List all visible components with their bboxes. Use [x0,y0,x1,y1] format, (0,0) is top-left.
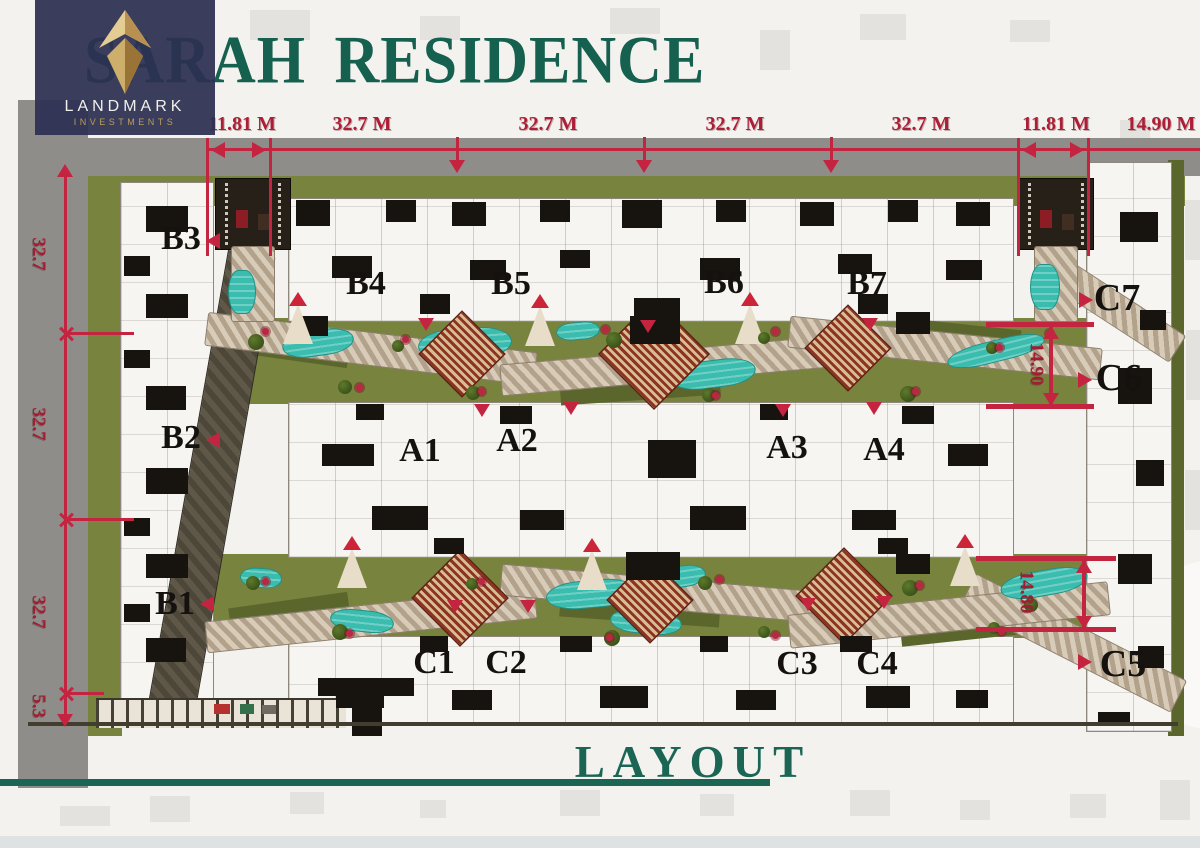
facade-patch [386,200,416,222]
pointer-icon-c5 [1078,654,1092,670]
facade-patch [372,506,428,530]
entry-cone-tip-icon [583,538,601,552]
dimension-cross-tick [57,685,75,703]
edge-marker-icon [862,318,878,331]
flower-icon [716,576,723,583]
flower-icon [402,336,409,343]
edge-marker-icon [520,600,536,613]
background-block [1160,780,1190,820]
bush-icon [606,332,622,348]
facade-patch [560,636,592,652]
arrowhead-icon [1022,142,1036,158]
edge-marker-icon [775,404,791,417]
entry-cone-tip-icon [956,534,974,548]
facade-patch [896,312,930,334]
building-label-a2: A2 [496,422,538,460]
flower-icon [912,388,919,395]
facade-patch [146,554,188,578]
bush-icon [466,578,478,590]
background-block [860,14,906,40]
dimension-cross-tick [57,325,75,343]
flower-icon [478,578,485,585]
pointer-icon-b2 [206,432,220,448]
facade-patch [520,510,564,530]
building-label-a4: A4 [863,431,905,469]
background-block [420,800,446,818]
building-label-b6: B6 [704,264,744,302]
bush-icon [758,626,770,638]
entry-cone [525,306,555,346]
building-label-c3: C3 [776,645,818,683]
background-block [1185,200,1200,260]
edge-marker-icon [418,318,434,331]
facade-patch [146,294,188,318]
facade-patch [956,202,990,226]
dimension-line-top [207,148,1200,151]
facade-patch [146,468,188,494]
facade-patch [124,256,150,276]
facade-patch [716,200,746,222]
background-block [1185,470,1200,530]
pointer-icon-b3 [206,233,220,249]
building-label-c2: C2 [485,644,527,682]
arrowhead-icon [449,160,465,173]
dimension-cap [976,627,1116,632]
facade-patch [736,690,776,710]
road-left [18,100,88,788]
facade-patch [626,552,680,580]
landmark-arrow-icon [95,10,155,96]
dimension-cap [986,404,1094,409]
facade-patch [878,538,908,554]
facade-patch [296,200,330,226]
dim-top-1490: 14.90 M [1127,113,1196,136]
footer-band [0,836,1200,848]
flower-icon [772,632,779,639]
building-label-b1: B1 [155,585,195,623]
facade-patch [956,690,988,708]
dim-left-53: 5.3 [27,694,49,718]
facade-patch [560,250,590,268]
vehicle [262,705,276,714]
facade-patch [622,200,662,228]
edge-marker-icon [876,596,892,609]
background-block [560,790,600,816]
building-label-c4: C4 [856,645,898,683]
facade-patch [434,538,464,554]
arrowhead-icon [823,160,839,173]
facade-patch [1140,310,1166,330]
flower-icon [356,384,363,391]
entry-cone [577,550,607,590]
pointer-icon-c6 [1078,372,1092,388]
arrowhead-icon [1043,326,1059,339]
background-block [700,794,734,816]
dimension-cap [986,322,1094,327]
entry-cone-tip-icon [289,292,307,306]
brand-logo: LANDMARK INVESTMENTS [35,0,215,135]
dim-left-327-2: 32.7 [27,407,49,440]
building-label-c1: C1 [413,644,455,682]
flower-icon [602,326,609,333]
building-label-c7: C7 [1094,276,1140,320]
dim-left-327-3: 32.7 [27,595,49,628]
facade-patch [852,510,896,530]
facade-patch [866,686,910,708]
facade-patch [124,350,150,368]
facade-patch [1136,460,1164,486]
dim-top-1181-right: 11.81 M [1022,113,1090,136]
background-block [760,30,790,70]
facade-patch [1120,212,1158,242]
edge-marker-icon [474,404,490,417]
bush-icon [758,332,770,344]
background-block [1186,330,1200,400]
vehicle [1062,214,1074,230]
plan-bottom-edge [28,722,1178,726]
dimension-cross-tick [57,511,75,529]
building-label-b7: B7 [847,265,887,303]
pointer-icon-b1 [200,596,214,612]
caption-underline [0,779,770,786]
landscape-strip-left [88,176,122,736]
entrance-gate-right [1018,178,1094,250]
facade-patch [322,444,374,466]
edge-marker-icon [866,402,882,415]
arrowhead-icon [57,164,73,177]
facade-patch [420,294,450,314]
arrowhead-icon [1076,616,1092,629]
dim-top-327-2: 32.7 M [519,113,578,136]
flower-icon [916,582,923,589]
facade-patch [540,200,570,222]
facade-patch [896,554,930,574]
entry-cone-tip-icon [343,536,361,550]
flower-icon [478,388,485,395]
facade-patch [690,506,746,530]
dimension-post [1087,138,1090,256]
facade-patch [452,690,492,710]
pool [228,270,256,314]
bush-icon [698,576,712,590]
bush-icon [248,334,264,350]
entry-cone-tip-icon [531,294,549,308]
building-label-b3: B3 [161,220,201,258]
bush-icon [246,576,260,590]
entry-cone [283,304,313,344]
dim-left-327-1: 32.7 [27,237,49,270]
dim-top-327-4: 32.7 M [892,113,951,136]
flower-icon [262,578,269,585]
background-block [1070,794,1106,818]
building-block-a-row [288,402,1014,558]
facade-patch [888,200,918,222]
dim-top-1181-left: 11.81 M [208,113,276,136]
arrowhead-icon [1043,393,1059,406]
facade-patch [1118,554,1152,584]
entry-cone [950,546,980,586]
arrowhead-icon [211,142,225,158]
facade-patch [356,404,384,420]
vehicle [214,704,230,714]
arrowhead-icon [636,160,652,173]
dim-inner-1480: 14.80 [1015,571,1037,614]
flower-icon [772,328,779,335]
edge-marker-icon [563,402,579,415]
arrowhead-icon [252,142,266,158]
building-label-b5: B5 [491,265,531,303]
vehicle [1040,210,1052,228]
site-plan-page: 11.81 M 32.7 M 32.7 M 32.7 M 32.7 M 11.8… [0,0,1200,848]
flower-icon [262,328,269,335]
facade-patch [700,636,728,652]
background-block [850,790,890,816]
bush-icon [902,580,918,596]
arrowhead-icon [57,714,73,727]
dimension-post [1017,138,1020,256]
building-label-a1: A1 [399,432,441,470]
building-label-a3: A3 [766,429,808,467]
facade-patch [902,406,934,424]
background-block [150,796,190,822]
entrance-gate-left [215,178,291,250]
arrowhead-icon [1076,560,1092,573]
dimension-post [269,138,272,256]
entry-cone [337,548,367,588]
facade-patch [146,638,186,662]
dimension-cap [976,556,1116,561]
background-block [60,806,110,826]
facade-patch [124,604,150,622]
flower-icon [346,630,353,637]
flower-icon [712,392,719,399]
background-block [960,800,990,820]
flower-icon [996,344,1003,351]
dim-top-327-3: 32.7 M [706,113,765,136]
pool [1030,264,1060,310]
dim-inner-1490: 14.90 [1025,343,1047,386]
pointer-icon-c7 [1079,292,1093,308]
building-label-c5: C5 [1100,642,1146,686]
facade-patch [452,202,486,226]
background-block [1010,20,1050,42]
vehicle [236,210,248,228]
edge-marker-icon [640,320,656,333]
arrowhead-icon [1070,142,1084,158]
facade-patch [946,260,982,280]
facade-patch [352,696,382,736]
dim-top-327-1: 32.7 M [333,113,392,136]
facade-patch [146,386,186,410]
facade-patch [800,202,834,226]
facade-patch [648,440,696,478]
building-label-c6: C6 [1096,356,1142,400]
facade-patch [318,678,414,696]
edge-marker-icon [800,598,816,611]
brand-name: LANDMARK [35,98,215,116]
building-label-b4: B4 [346,265,386,303]
edge-marker-icon [447,600,463,613]
facade-patch [600,686,648,708]
bush-icon [338,380,352,394]
brand-subtitle: INVESTMENTS [35,117,215,127]
vehicle [240,704,254,714]
facade-patch [948,444,988,466]
flower-icon [606,634,613,641]
dimension-line-left [64,168,67,724]
background-block [290,792,324,814]
building-label-b2: B2 [161,419,201,457]
